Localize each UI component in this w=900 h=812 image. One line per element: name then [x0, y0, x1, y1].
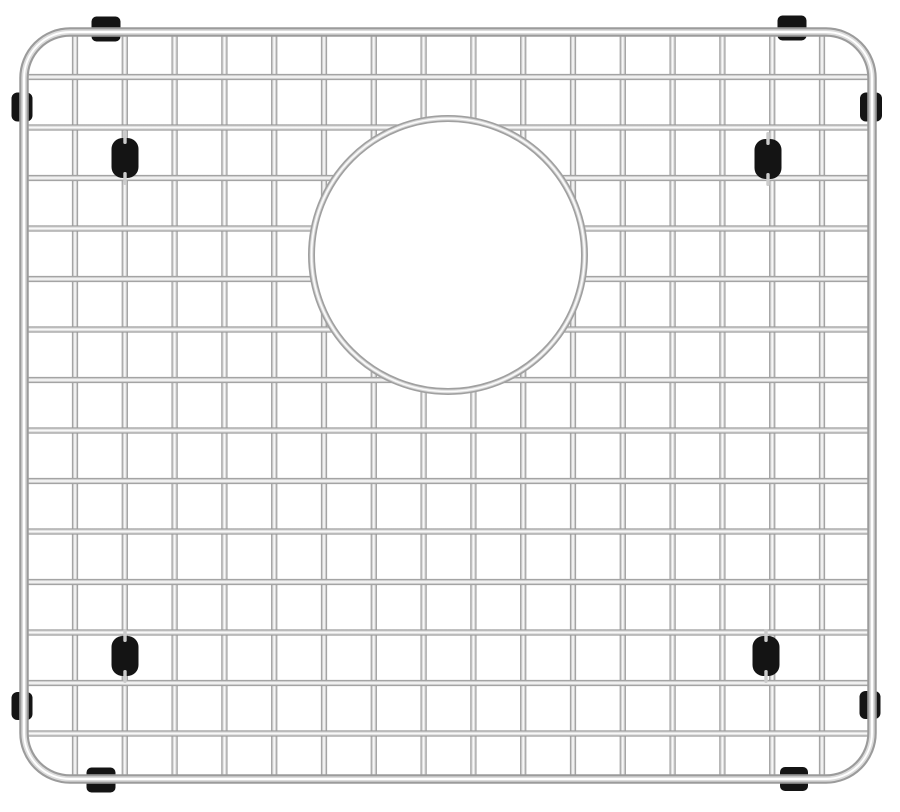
- vertical-wire: [570, 30, 576, 779]
- horizontal-wire: [25, 680, 871, 686]
- foot-wire-stub-top: [123, 629, 126, 642]
- vertical-wire: [620, 30, 626, 779]
- foot-wire-stub-top: [766, 132, 769, 145]
- foot-wire-stub-bottom: [123, 172, 126, 185]
- vertical-wire: [819, 30, 825, 779]
- horizontal-wire: [25, 579, 871, 585]
- sink-grid-photo: [0, 0, 900, 812]
- foot-wire-stub-top: [123, 131, 126, 144]
- horizontal-wire: [25, 427, 871, 433]
- foot-wire-stub-bottom: [764, 670, 767, 683]
- vertical-wire: [271, 30, 277, 779]
- horizontal-wire: [25, 629, 871, 635]
- foot-wire-stub-top: [764, 629, 767, 642]
- horizontal-wire: [25, 730, 871, 736]
- foot-wire-stub-bottom: [766, 173, 769, 186]
- vertical-wire: [670, 30, 676, 779]
- product-photo: [0, 0, 900, 812]
- foot-wire-stub-bottom: [123, 670, 126, 683]
- vertical-wire: [321, 30, 327, 779]
- horizontal-wire: [25, 74, 871, 80]
- vertical-wire: [221, 30, 227, 779]
- vertical-wire: [719, 30, 725, 779]
- drain-opening: [312, 119, 585, 392]
- vertical-wire: [72, 30, 78, 779]
- vertical-wire: [172, 30, 178, 779]
- horizontal-wire: [25, 528, 871, 534]
- horizontal-wire: [25, 478, 871, 484]
